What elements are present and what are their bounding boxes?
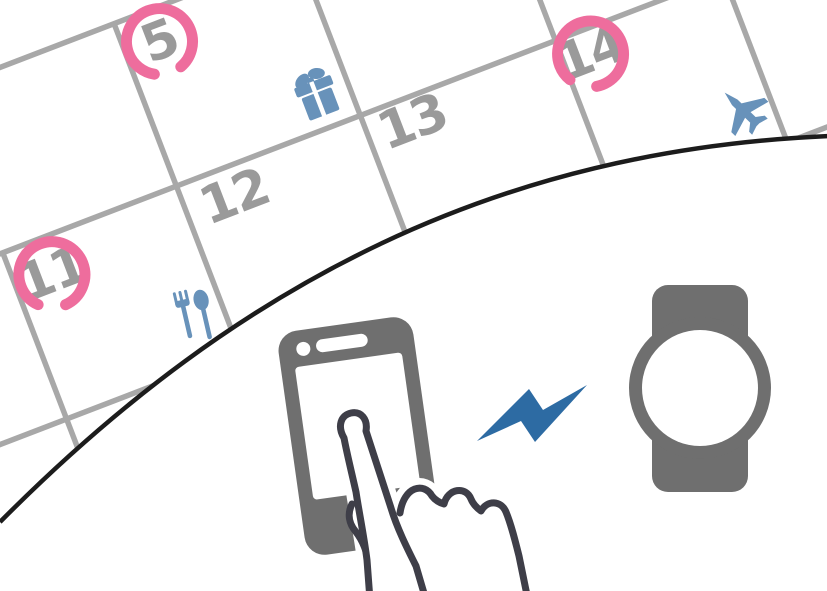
calendar-day-number: 13 bbox=[370, 82, 455, 163]
touch-hand bbox=[340, 413, 528, 591]
calendar-sync-illustration: 5 11 12 13 14 bbox=[0, 0, 827, 591]
fork-handle bbox=[180, 303, 193, 339]
smartwatch bbox=[629, 285, 771, 492]
illustration-canvas: 5 11 12 13 14 bbox=[0, 0, 827, 591]
watch-face bbox=[642, 330, 758, 446]
spoon-shape bbox=[191, 288, 217, 341]
sync-bolt-icon bbox=[477, 385, 587, 442]
gift-icon bbox=[289, 62, 344, 123]
grid-line bbox=[114, 24, 292, 488]
calendar-day-number: 12 bbox=[192, 157, 277, 238]
spoon-handle bbox=[201, 307, 213, 339]
spoon-bowl bbox=[191, 288, 210, 312]
